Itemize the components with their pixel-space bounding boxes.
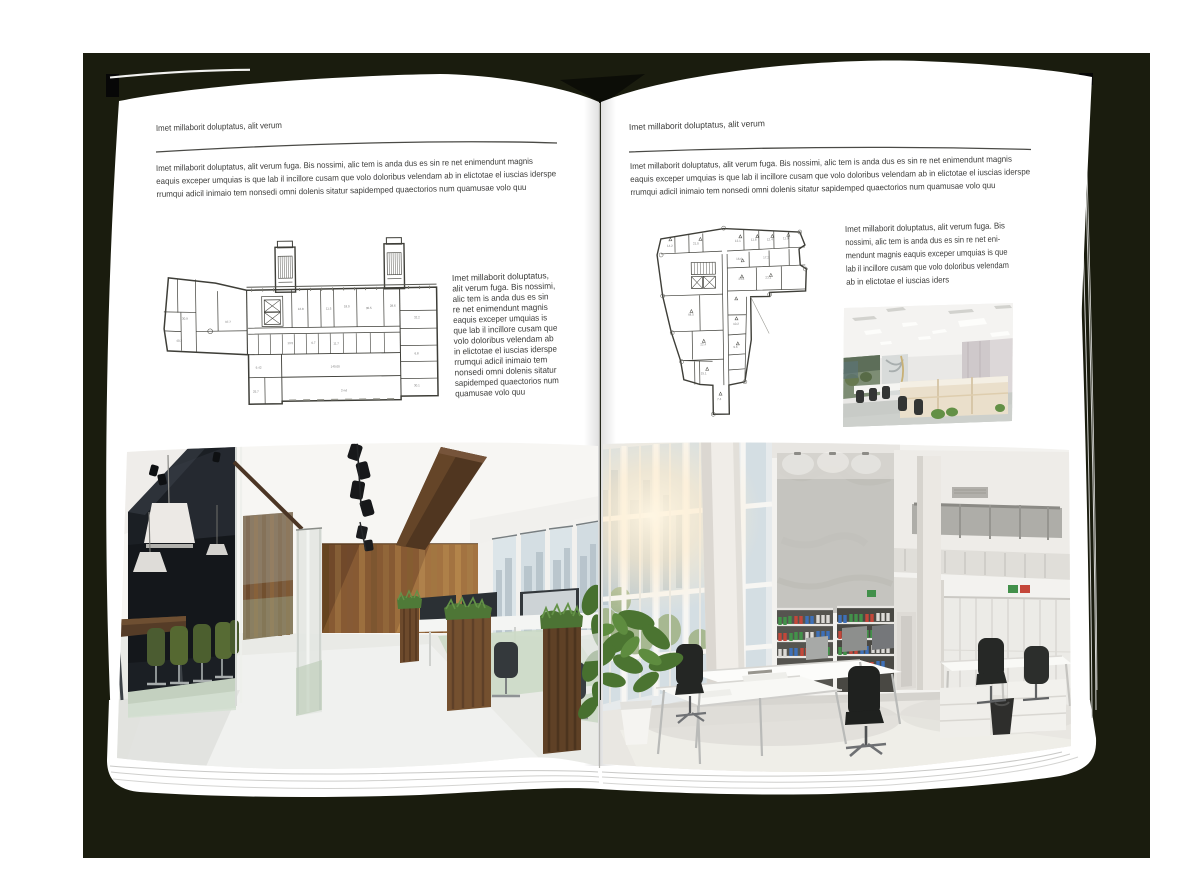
svg-text:13.5: 13.5 xyxy=(287,341,293,345)
svg-text:6.7: 6.7 xyxy=(311,341,316,345)
svg-text:10.2: 10.2 xyxy=(733,322,739,326)
svg-text:9.42: 9.42 xyxy=(256,366,262,370)
svg-text:30.1: 30.1 xyxy=(414,383,420,387)
svg-text:21.0: 21.0 xyxy=(693,241,699,245)
svg-text:quamusae volo quu: quamusae volo quu xyxy=(455,386,525,398)
svg-text:15.1: 15.1 xyxy=(701,371,707,375)
svg-text:37.7: 37.7 xyxy=(225,320,231,324)
svg-text:2-nd: 2-nd xyxy=(341,388,347,392)
svg-text:40.2: 40.2 xyxy=(176,339,182,343)
svg-text:30.5: 30.5 xyxy=(366,306,372,310)
svg-text:25.7: 25.7 xyxy=(253,390,259,394)
svg-text:22.4: 22.4 xyxy=(700,342,706,346)
svg-text:48.5: 48.5 xyxy=(688,313,694,317)
svg-text:7.4: 7.4 xyxy=(717,397,722,401)
svg-text:16.6: 16.6 xyxy=(736,257,742,261)
svg-text:17.2: 17.2 xyxy=(763,255,769,259)
svg-text:18.0: 18.0 xyxy=(344,304,350,308)
svg-text:140.00: 140.00 xyxy=(331,364,341,368)
svg-text:32.2: 32.2 xyxy=(414,315,420,319)
svg-text:11.8: 11.8 xyxy=(751,238,757,242)
svg-text:12.8: 12.8 xyxy=(298,307,304,311)
svg-text:11.9: 11.9 xyxy=(783,236,789,240)
svg-text:14.2: 14.2 xyxy=(667,244,673,248)
svg-text:30.9: 30.9 xyxy=(182,317,188,321)
svg-text:24.8: 24.8 xyxy=(738,277,744,281)
svg-text:6.8: 6.8 xyxy=(414,351,419,355)
svg-text:23.1: 23.1 xyxy=(765,275,771,279)
svg-text:28.6: 28.6 xyxy=(390,304,396,308)
svg-text:11.7: 11.7 xyxy=(333,341,339,345)
svg-text:12.1: 12.1 xyxy=(735,239,741,243)
svg-text:9.6: 9.6 xyxy=(733,345,738,349)
svg-text:12.4: 12.4 xyxy=(767,237,773,241)
svg-text:11.5: 11.5 xyxy=(326,307,332,311)
